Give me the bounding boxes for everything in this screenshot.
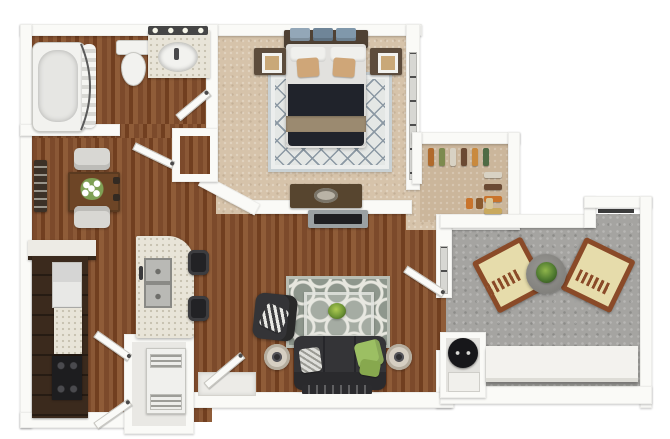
dining-chair-top (74, 148, 110, 170)
bed-duvet (286, 84, 366, 146)
side-table-left-lamp (272, 352, 282, 362)
clothing-item (461, 148, 467, 166)
headboard-blanket-3 (336, 28, 356, 41)
side-table-right-lamp (394, 352, 404, 362)
wall-balcony-top (440, 214, 594, 228)
bed-throw-blanket (286, 116, 366, 132)
hall-closet-floor (180, 136, 210, 174)
nightstand-left-frame (262, 53, 282, 73)
balcony-table-plant (536, 262, 557, 283)
wall-closet-left (412, 132, 422, 184)
bed-accent-pillow-right (332, 57, 355, 77)
headboard-blanket-1 (290, 28, 310, 41)
vanity-light-bar (148, 26, 208, 35)
shower-curtain-rod (78, 42, 100, 132)
clothing-item (439, 148, 445, 166)
closet-shoes (466, 198, 493, 209)
dining-flowers (78, 178, 106, 200)
dining-chair-arm-1 (113, 177, 120, 184)
clothing-item (484, 184, 502, 190)
washer-vent-bottom (150, 394, 182, 410)
bathtub-basin (38, 50, 78, 122)
balcony-railing (598, 209, 634, 213)
kitchen-counter (54, 308, 82, 354)
clothing-item (484, 172, 502, 178)
closet-hanging-clothes-top (428, 148, 489, 166)
washer-vent-top (150, 354, 182, 368)
dining-chair-arm-2 (113, 194, 120, 201)
clothing-item (428, 148, 434, 166)
island-sink-basin-1 (144, 258, 172, 283)
wall-left (20, 24, 32, 428)
vanity-faucet (174, 48, 179, 60)
clothing-item (476, 198, 483, 209)
island-faucet (139, 266, 143, 280)
balcony-ledge (486, 346, 638, 382)
nightstand-right-frame (378, 53, 398, 73)
clothing-item (472, 148, 478, 166)
wall-balcony-right (640, 196, 652, 408)
dresser-oval-tray (314, 188, 338, 203)
sofa-pillow-striped (298, 347, 322, 374)
bed-accent-pillow-left (296, 57, 319, 77)
balcony-storage-shelf (448, 372, 480, 392)
sofa-pillow-green-2 (359, 358, 381, 377)
island-sink-basin-2 (144, 283, 172, 308)
clothing-item (483, 148, 489, 166)
clothing-item (450, 148, 456, 166)
dining-wall-shelf (34, 160, 47, 212)
refrigerator (52, 262, 82, 308)
bar-stool-2 (188, 296, 209, 321)
tv-screen (314, 214, 362, 224)
kitchen-stove (52, 356, 82, 400)
coffee-table-plant (328, 303, 346, 319)
bar-stool-1 (188, 250, 209, 275)
water-heater (448, 338, 478, 368)
clothing-item (486, 198, 493, 209)
wall-closet-top (412, 132, 520, 144)
window-sill-behind-sofa (302, 385, 372, 394)
dining-chair-bottom (74, 206, 110, 228)
clothing-item (466, 198, 473, 209)
floor-plan-figure (0, 0, 670, 439)
headboard-blanket-2 (313, 28, 333, 41)
